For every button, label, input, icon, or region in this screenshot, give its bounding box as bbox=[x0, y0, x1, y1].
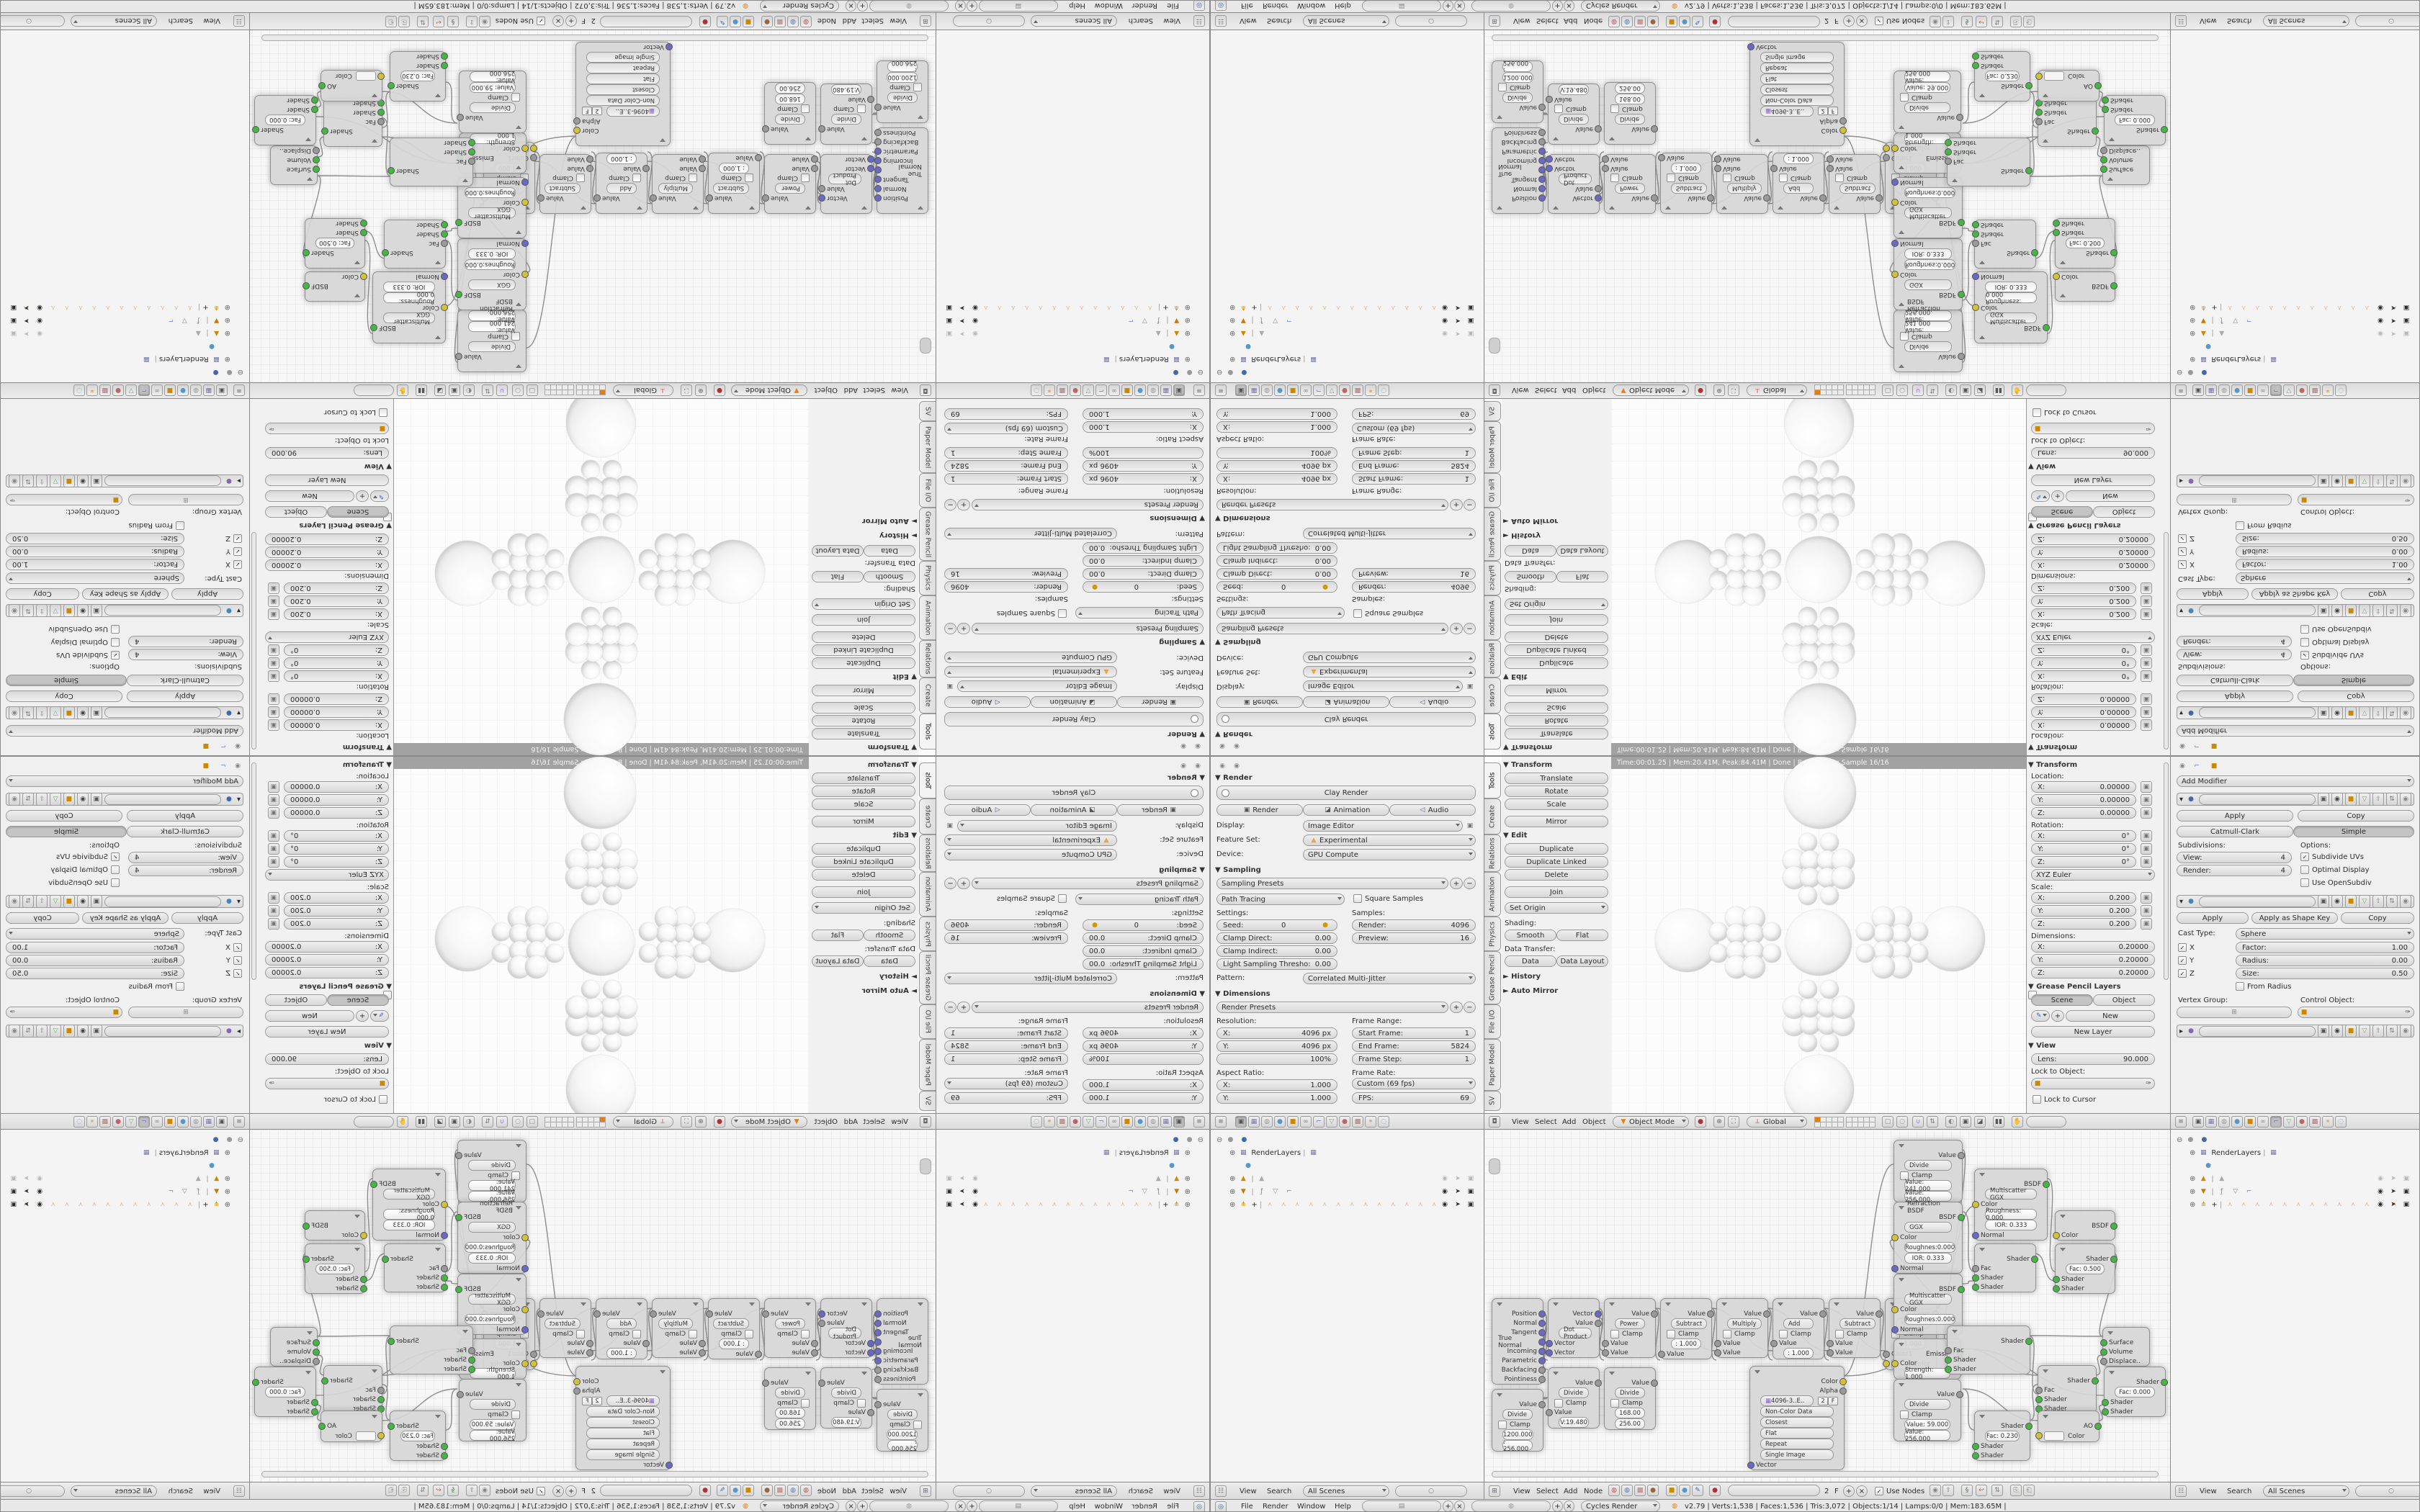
btn-delete[interactable]: Delete bbox=[1505, 869, 1608, 881]
toolshelf-tab-relations[interactable]: Relations bbox=[919, 640, 936, 678]
data-icon[interactable]: ▽ bbox=[50, 1025, 61, 1038]
input-socket[interactable] bbox=[1972, 53, 1979, 60]
matB-icon[interactable]: ◍ bbox=[787, 1485, 799, 1496]
hedc-auto-mirror[interactable]: ► Auto Mirror bbox=[1503, 987, 1558, 995]
node-field[interactable]: Value: 256.000 bbox=[1904, 71, 1950, 82]
sel-render-presets[interactable]: Render Presets bbox=[972, 1002, 1204, 1013]
input-socket[interactable] bbox=[313, 166, 320, 173]
lock-icon[interactable]: ▣ bbox=[2141, 905, 2152, 917]
node-field[interactable]: 256.00 bbox=[775, 1418, 805, 1429]
wrench-icon[interactable]: ⌐ bbox=[1095, 1116, 1107, 1128]
node-11[interactable]: ColorAlpha▦ 4096-3..E..2FNon-Color DataC… bbox=[575, 1366, 671, 1470]
sel-xyz-euler[interactable]: XYZ Euler bbox=[2031, 631, 2155, 643]
btn-item[interactable]: − bbox=[944, 499, 956, 510]
input-socket[interactable] bbox=[313, 1358, 320, 1365]
node-26[interactable]: AOColor bbox=[2038, 1410, 2099, 1442]
node-select-repeat[interactable]: Repeat bbox=[586, 63, 660, 73]
node-select-multiscatter-ggx[interactable]: Multiscatter GGX bbox=[468, 207, 516, 218]
outliner-row-item2[interactable]: ● bbox=[1166, 341, 1178, 352]
eye-icon[interactable]: ◉ bbox=[2331, 474, 2343, 487]
btn-scale[interactable]: Scale bbox=[812, 702, 915, 714]
modifier-header[interactable]: ▾●▣◉■▽⇧⇅◉ bbox=[6, 706, 243, 719]
toolshelf-tab-paper-model[interactable]: Paper Model bbox=[919, 421, 936, 473]
node-6[interactable]: ValueSubtractClamp: 1.000Value bbox=[1660, 1298, 1712, 1359]
btn-join[interactable]: Join bbox=[812, 614, 915, 626]
wrench-icon[interactable]: ⌐ bbox=[1313, 1116, 1325, 1128]
node-field[interactable]: : 256.000 bbox=[887, 61, 918, 72]
btn-smooth[interactable]: Smooth bbox=[864, 930, 915, 941]
output-socket[interactable] bbox=[874, 1310, 882, 1318]
node-8[interactable]: ValueAddClampValue: 1.000 bbox=[596, 1298, 647, 1359]
fld-y[interactable]: Y:0° bbox=[284, 657, 389, 669]
output-socket[interactable] bbox=[302, 1256, 310, 1263]
output-socket[interactable] bbox=[874, 1367, 882, 1374]
layer-grid[interactable] bbox=[1846, 1117, 1875, 1127]
clamp-checkbox[interactable] bbox=[801, 1399, 810, 1408]
toolshelf-tab-tools[interactable]: Tools bbox=[919, 714, 936, 750]
node-select-multiscatter-ggx[interactable]: Multiscatter GGX bbox=[383, 312, 435, 323]
node-select-add[interactable]: Add bbox=[606, 1318, 637, 1329]
btn-simple[interactable]: Simple bbox=[6, 826, 127, 837]
input-socket[interactable] bbox=[1891, 271, 1899, 278]
toolshelf-tab-create[interactable]: Create bbox=[919, 798, 936, 834]
output-socket[interactable] bbox=[1956, 1391, 1963, 1398]
output-socket[interactable] bbox=[1958, 1152, 1965, 1159]
node-1[interactable]: ValueDivideClamp1200.000: 256.000 bbox=[1492, 1389, 1543, 1452]
fld-y[interactable]: Y:4096 px bbox=[1216, 460, 1337, 472]
btn-item[interactable]: − bbox=[944, 623, 956, 634]
node-field[interactable]: IOR: 0.333 bbox=[468, 1253, 516, 1264]
snapn-icon[interactable]: ⇅ bbox=[417, 16, 429, 27]
rendob-icon[interactable]: ◐ bbox=[463, 384, 475, 396]
fld-frame-step[interactable]: Frame Step:1 bbox=[944, 447, 1068, 459]
output-socket[interactable] bbox=[874, 1376, 882, 1383]
fld-x[interactable]: X:0.00000 bbox=[2031, 781, 2136, 793]
pil-x[interactable] bbox=[354, 1116, 394, 1128]
image-name-field[interactable]: ▦ 4096-3..E.. bbox=[1760, 1395, 1814, 1406]
input-socket[interactable] bbox=[468, 148, 475, 156]
output-socket[interactable] bbox=[2110, 282, 2117, 289]
lock-icon[interactable]: ▣ bbox=[268, 856, 279, 868]
output-socket[interactable] bbox=[2161, 126, 2168, 133]
color-swatch[interactable] bbox=[356, 71, 376, 81]
node-select-divide[interactable]: Divide bbox=[1615, 1387, 1645, 1398]
chk-lock-to-cursor[interactable]: Lock to Cursor bbox=[2033, 408, 2096, 417]
sel-sampling-presets[interactable]: Sampling Presets bbox=[1216, 623, 1448, 634]
sel-gpu-compute[interactable]: GPU Compute bbox=[944, 652, 1117, 663]
btn-data-layout[interactable]: Data Layout bbox=[812, 955, 864, 967]
output-socket[interactable] bbox=[1839, 1387, 1847, 1395]
output-socket[interactable] bbox=[762, 125, 769, 132]
chk-use-opensubdiv[interactable]: Use OpenSubdiv bbox=[48, 878, 120, 887]
fld-x[interactable]: X:0.20000 bbox=[265, 559, 389, 571]
snapn-icon[interactable]: ⇅ bbox=[2386, 895, 2398, 908]
node-field[interactable]: : 1.000 bbox=[1783, 1348, 1814, 1359]
node-select-multiply[interactable]: Multiply bbox=[1727, 183, 1762, 194]
fld-lens[interactable]: Lens:90.000 bbox=[265, 447, 389, 459]
fld-y[interactable]: Y:0.20000 bbox=[2031, 546, 2155, 558]
node-17[interactable]: BSDFMultiscatter GGXColorRoughness: 0.00… bbox=[372, 271, 446, 343]
lock-icon[interactable]: ▣ bbox=[268, 807, 279, 819]
chk-use-nodes[interactable]: ✓Use Nodes bbox=[1875, 17, 1924, 25]
node-22[interactable]: SurfaceVolumeDisplace.. bbox=[270, 1327, 318, 1367]
output-socket[interactable] bbox=[874, 129, 882, 136]
data-icon[interactable]: ▽ bbox=[50, 895, 61, 908]
output-socket[interactable] bbox=[2094, 1423, 2102, 1430]
chk-z[interactable]: ✓Z bbox=[225, 969, 242, 978]
fld-y[interactable]: Y:1.000 bbox=[1216, 408, 1337, 420]
input-socket[interactable] bbox=[1972, 62, 1979, 69]
input-socket[interactable] bbox=[755, 1351, 762, 1358]
world-icon[interactable]: ● bbox=[730, 1485, 741, 1496]
tex-icon[interactable]: ▩ bbox=[99, 1116, 111, 1128]
modifier-name-field[interactable] bbox=[104, 476, 221, 487]
input-socket[interactable] bbox=[2102, 106, 2109, 113]
input-socket[interactable] bbox=[1891, 179, 1899, 186]
chain-icon[interactable]: ∞ bbox=[2257, 1116, 2269, 1128]
input-socket[interactable] bbox=[1945, 148, 1952, 156]
node-field[interactable]: Strength: 1.000 bbox=[1904, 133, 1950, 144]
node-16[interactable]: ValueDivideClampValue: 59.000Value: 256.… bbox=[459, 71, 526, 133]
btn-item[interactable]: − bbox=[944, 1002, 956, 1013]
modifier-name-field[interactable] bbox=[104, 1026, 221, 1037]
fld-radius[interactable]: Radius:0.00 bbox=[6, 955, 184, 966]
clamp-checkbox[interactable] bbox=[913, 84, 922, 92]
input-socket[interactable] bbox=[521, 199, 529, 206]
fld-end-frame[interactable]: End Frame:5824 bbox=[1352, 460, 1476, 472]
fld-factor[interactable]: Factor:1.00 bbox=[2236, 559, 2414, 570]
pivot-icon[interactable]: ⊕ bbox=[1713, 1116, 1725, 1128]
node-select-non-color-data[interactable]: Non-Color Data bbox=[1760, 95, 1834, 106]
output-socket[interactable] bbox=[321, 127, 328, 135]
node-field[interactable]: 168.00 bbox=[775, 1408, 805, 1418]
sel-sphere[interactable]: Sphere bbox=[2236, 572, 2414, 584]
node-0[interactable]: PositionNormalTangentTrue NormalIncoming… bbox=[877, 1298, 928, 1385]
fld-y[interactable]: Y:0.00000 bbox=[2031, 706, 2136, 718]
matB-icon[interactable]: ◍ bbox=[787, 16, 799, 27]
sel-sphere[interactable]: Sphere bbox=[2236, 928, 2414, 940]
node-select-ggx[interactable]: GGX bbox=[1904, 279, 1952, 290]
output-socket[interactable] bbox=[1707, 1310, 1714, 1318]
node-field[interactable]: : 1.000 bbox=[719, 1338, 749, 1349]
btn-duplicate[interactable]: Duplicate bbox=[812, 657, 915, 669]
clap-icon[interactable]: ◪ bbox=[434, 1116, 446, 1128]
output-socket[interactable] bbox=[818, 125, 825, 132]
hedc-history[interactable]: ► History bbox=[1503, 531, 1541, 539]
node-select-flat[interactable]: Flat bbox=[1760, 1428, 1834, 1439]
pil-x[interactable] bbox=[1728, 1485, 1820, 1496]
sel-object-mode[interactable]: ▼Object Mode bbox=[731, 384, 807, 396]
chk-x[interactable]: ✓X bbox=[2178, 943, 2195, 952]
input-socket[interactable] bbox=[1945, 1366, 1952, 1373]
pin-icon[interactable]: ◉ bbox=[9, 793, 20, 806]
clamp-checkbox[interactable] bbox=[576, 1330, 585, 1338]
btn-object[interactable]: Object bbox=[2093, 994, 2155, 1006]
node-field[interactable]: Roughness: 0.000 bbox=[383, 1209, 435, 1220]
node-select-single-image[interactable]: Single Image bbox=[586, 1449, 660, 1460]
input-socket[interactable] bbox=[2100, 1339, 2107, 1346]
node-field[interactable]: IOR: 0.333 bbox=[1904, 1253, 1952, 1264]
btn-delete[interactable]: Delete bbox=[812, 869, 915, 881]
arrup-icon[interactable]: ⇧ bbox=[466, 16, 478, 27]
output-socket[interactable] bbox=[1839, 117, 1847, 125]
matA-icon[interactable]: ◍ bbox=[800, 16, 812, 27]
input-socket[interactable] bbox=[311, 1408, 318, 1416]
snapn-icon[interactable]: ⇅ bbox=[22, 1025, 34, 1038]
btn-item[interactable]: + bbox=[1450, 1002, 1463, 1013]
input-socket[interactable] bbox=[2053, 1232, 2060, 1239]
node-field[interactable]: V:19.480 bbox=[1559, 84, 1589, 95]
toolshelf-tab-relations[interactable]: Relations bbox=[1484, 834, 1501, 872]
node-field[interactable]: : 256.000 bbox=[1502, 1440, 1533, 1451]
node-hscrollbar[interactable] bbox=[261, 35, 928, 41]
input-socket[interactable] bbox=[867, 165, 874, 172]
hed-render[interactable]: ▼ Render bbox=[1168, 774, 1205, 782]
clamp-checkbox[interactable] bbox=[745, 1330, 753, 1338]
manip-icon[interactable]: ⛶ bbox=[681, 384, 692, 396]
chk-use-nodes[interactable]: ✓Use Nodes bbox=[1875, 1487, 1924, 1495]
output-socket[interactable] bbox=[874, 185, 882, 192]
modifier-name-field[interactable] bbox=[2199, 606, 2316, 616]
input-socket[interactable] bbox=[2035, 109, 2043, 116]
outliner-row-item0[interactable]: ⊖●● bbox=[210, 1134, 243, 1146]
toolshelf-tab-grease-pencil[interactable]: Grease Pencil bbox=[1484, 951, 1501, 1004]
output-socket[interactable] bbox=[1956, 114, 1963, 121]
input-socket[interactable] bbox=[441, 1201, 448, 1208]
btn-new-layer[interactable]: New Layer bbox=[2031, 1026, 2155, 1038]
modifier-name-field[interactable] bbox=[2199, 1026, 2316, 1037]
cam-icon[interactable]: ▣ bbox=[449, 384, 460, 396]
node-select-non-color-data[interactable]: Non-Color Data bbox=[1760, 1406, 1834, 1417]
sel-sampling-presets[interactable]: Sampling Presets bbox=[972, 623, 1204, 634]
npanel-scrollbar[interactable] bbox=[2164, 762, 2169, 980]
output-socket[interactable] bbox=[2031, 1256, 2038, 1263]
outliner-row-item4[interactable]: ⊕▼|ƒ▽⌐ bbox=[1125, 315, 1191, 326]
btn-simple[interactable]: Simple bbox=[6, 675, 127, 686]
lock-icon[interactable]: ▣ bbox=[268, 794, 279, 806]
output-socket[interactable] bbox=[1538, 1329, 1546, 1336]
input-socket[interactable] bbox=[1891, 1265, 1899, 1272]
input-socket[interactable] bbox=[1658, 154, 1665, 161]
node-9[interactable]: ValueSubtractClampValueValue bbox=[1829, 154, 1881, 214]
node-7[interactable]: ValueMultiplyClampValueValue bbox=[652, 154, 704, 214]
node-18[interactable]: ShaderFacShaderShader bbox=[1974, 220, 2036, 269]
ballr-icon[interactable]: ● bbox=[714, 384, 725, 396]
node-field[interactable]: IOR: 0.333 bbox=[1985, 1220, 2037, 1230]
key1-icon[interactable]: ⎘ bbox=[2010, 1485, 2022, 1496]
toolshelf-tab-file-i-o[interactable]: File I/O bbox=[1484, 1004, 1501, 1039]
input-socket[interactable] bbox=[441, 1265, 448, 1272]
clamp-checkbox[interactable] bbox=[801, 1330, 810, 1338]
btn-item[interactable]: + bbox=[857, 0, 868, 12]
fld-x[interactable]: X:4096 px bbox=[1216, 473, 1337, 485]
fld-x[interactable]: X:0.20000 bbox=[2031, 559, 2155, 571]
cube-icon[interactable]: ■ bbox=[2345, 474, 2357, 487]
outliner-row-item3[interactable]: ⊕▲|▲ bbox=[2190, 328, 2228, 339]
node-13[interactable]: Refraction BSDFBSDFGGXColorRoughnes:0.00… bbox=[457, 238, 526, 310]
node-hscrollbar[interactable] bbox=[261, 1471, 928, 1477]
sel-pencil[interactable]: ✎ bbox=[2031, 490, 2050, 502]
btn-render[interactable]: ▣Render bbox=[1117, 696, 1204, 708]
btn-duplicate-linked[interactable]: Duplicate Linked bbox=[1505, 644, 1608, 656]
clamp-checkbox[interactable] bbox=[689, 174, 697, 183]
data-icon[interactable]: ▽ bbox=[50, 604, 61, 617]
layer-grid[interactable] bbox=[545, 1117, 574, 1127]
node-field[interactable]: Roughnes:0.000 bbox=[465, 259, 516, 270]
btn-duplicate-linked[interactable]: Duplicate Linked bbox=[1505, 856, 1608, 868]
wrench-icon[interactable]: ⌐ bbox=[2270, 1116, 2282, 1128]
node-field[interactable]: Roughness: 0.000 bbox=[1985, 1209, 2037, 1220]
input-socket[interactable] bbox=[2100, 156, 2107, 163]
sel-experimental[interactable]: ▲Experimental bbox=[944, 834, 1117, 846]
node-field[interactable]: Roughness: 0.000 bbox=[383, 292, 435, 303]
btn-scene[interactable]: Scene bbox=[2031, 994, 2093, 1006]
cam-icon[interactable]: ▣ bbox=[1173, 384, 1185, 396]
output-socket[interactable] bbox=[1875, 1310, 1883, 1318]
circ-icon[interactable]: ○ bbox=[1896, 384, 1908, 396]
chk-optimal-display[interactable]: Optimal Display bbox=[50, 638, 120, 647]
input-socket[interactable] bbox=[1602, 1349, 1609, 1356]
node-select-multiscatter-ggx[interactable]: Multiscatter GGX bbox=[468, 1294, 516, 1305]
output-socket[interactable] bbox=[2092, 1377, 2099, 1385]
btn-duplicate[interactable]: Duplicate bbox=[812, 843, 915, 855]
output-socket[interactable] bbox=[650, 1310, 657, 1318]
sel-add-modifier[interactable]: Add Modifier bbox=[2177, 725, 2414, 737]
btn-object[interactable]: Object bbox=[265, 994, 327, 1006]
btn-audio[interactable]: ◁Audio bbox=[1389, 696, 1476, 708]
node-select-divide[interactable]: Divide bbox=[831, 114, 861, 125]
clamp-checkbox[interactable] bbox=[632, 1330, 641, 1338]
image-2[interactable]: 2 bbox=[592, 1397, 602, 1405]
outliner-row-item3[interactable]: ⊕▲|▲ bbox=[2190, 1173, 2228, 1184]
node-26[interactable]: AOColor bbox=[2038, 70, 2099, 102]
chk-from-radius[interactable]: From Radius bbox=[2236, 521, 2291, 530]
sel-set-origin[interactable]: Set Origin bbox=[812, 598, 915, 610]
node-16[interactable]: ValueDivideClampValue: 59.000Value: 256.… bbox=[1894, 1379, 1961, 1441]
cam-icon[interactable]: ▣ bbox=[91, 706, 102, 719]
vport-icon[interactable]: ◘ bbox=[920, 1116, 931, 1128]
input-socket[interactable] bbox=[441, 1452, 448, 1459]
output-socket[interactable] bbox=[874, 176, 882, 183]
outliner-row-item0[interactable]: ⊖●● bbox=[1170, 366, 1204, 378]
node-25[interactable]: ShaderFac: 0.230ShaderShader bbox=[1974, 1410, 2030, 1461]
hed-render[interactable]: ▼ Render bbox=[1215, 730, 1252, 738]
input-socket[interactable] bbox=[867, 1409, 874, 1416]
toolshelf-tab-relations[interactable]: Relations bbox=[1484, 640, 1501, 678]
input-socket[interactable] bbox=[1972, 1201, 1979, 1208]
outliner-row-renderlayers[interactable]: ⊕▦RenderLayers|▦ bbox=[141, 1147, 230, 1158]
scene-icon[interactable]: ◍ bbox=[1147, 384, 1159, 396]
edsel-icon[interactable]: ≡ bbox=[1215, 384, 1227, 396]
lock-icon[interactable]: ▣ bbox=[268, 781, 279, 793]
output-socket[interactable] bbox=[387, 82, 395, 89]
input-socket[interactable] bbox=[2100, 147, 2107, 154]
viewport-canvas[interactable]: Time:00:01.25 | Mem:20.41M, Peak:84.41M … bbox=[394, 757, 809, 1113]
outliner-row-item[interactable]: ⊕⋔+|⋏⋏⋏⋏⋏⋏⋏⋏⋏⋏⋏⋏⋏ bbox=[20, 1199, 230, 1210]
scene-icon[interactable]: ◍ bbox=[1261, 384, 1273, 396]
input-socket[interactable] bbox=[441, 53, 448, 60]
image-name-field[interactable]: ▦ 4096-3..E.. bbox=[606, 106, 660, 117]
input-socket[interactable] bbox=[699, 165, 706, 172]
outliner-row-item0[interactable]: ⊖●● bbox=[2177, 366, 2210, 378]
node-field[interactable]: Fac: 0.500 bbox=[315, 1264, 354, 1274]
pil-mag[interactable]: ○ bbox=[2355, 15, 2420, 27]
btn-new-layer[interactable]: New Layer bbox=[2031, 474, 2155, 486]
chk-use-opensubdiv[interactable]: Use OpenSubdiv bbox=[48, 625, 120, 634]
node-0[interactable]: PositionNormalTangentTrue NormalIncoming… bbox=[1492, 127, 1543, 214]
btn-catmull-clark[interactable]: Catmull-Clark bbox=[127, 675, 243, 686]
toolshelf-tab-animation[interactable]: Animation bbox=[1484, 872, 1501, 917]
node-19[interactable]: BSDFColor bbox=[305, 1210, 365, 1241]
input-socket[interactable] bbox=[1546, 165, 1553, 172]
btn-translate[interactable]: Translate bbox=[812, 773, 915, 784]
output-socket[interactable] bbox=[455, 1286, 462, 1293]
snapel-icon[interactable]: ▢ bbox=[526, 384, 538, 396]
fld-x[interactable]: X:0° bbox=[2031, 670, 2136, 682]
btn-new[interactable]: New bbox=[2066, 1010, 2155, 1022]
fld-radius[interactable]: Radius:0.00 bbox=[2236, 546, 2414, 557]
npanel-scrollbar[interactable] bbox=[2164, 532, 2169, 750]
chk-y[interactable]: ✓Y bbox=[2178, 956, 2194, 965]
image-name-field[interactable]: ▦ 4096-3..E.. bbox=[1760, 106, 1814, 117]
input-socket[interactable] bbox=[313, 1339, 320, 1346]
fld-end-frame[interactable]: End Frame:5824 bbox=[944, 1040, 1068, 1052]
circ-icon[interactable]: ○ bbox=[512, 384, 524, 396]
data-icon[interactable]: ▽ bbox=[1083, 1116, 1094, 1128]
image-2[interactable]: 2 bbox=[592, 107, 602, 116]
output-socket[interactable] bbox=[593, 1310, 601, 1318]
input-socket[interactable] bbox=[1770, 1340, 1778, 1347]
btn-rotate[interactable]: Rotate bbox=[812, 786, 915, 797]
key1-icon[interactable]: ⎘ bbox=[398, 1485, 410, 1496]
fld-x[interactable]: X:0.20000 bbox=[265, 941, 389, 953]
pil-cubeo[interactable]: ■✑ bbox=[2298, 494, 2414, 505]
input-socket[interactable] bbox=[521, 1360, 529, 1367]
pil-scene[interactable]: ◍ bbox=[1471, 0, 1551, 12]
pin-icon[interactable]: ◉ bbox=[479, 16, 490, 27]
output-socket[interactable] bbox=[1651, 1380, 1658, 1387]
input-socket[interactable] bbox=[811, 1340, 818, 1347]
pil-mag[interactable]: ○ bbox=[953, 1485, 1025, 1497]
lock-icon[interactable]: ▣ bbox=[268, 892, 279, 904]
node-22[interactable]: SurfaceVolumeDisplace.. bbox=[2102, 1327, 2150, 1367]
node-1[interactable]: ValueDivideClamp1200.000: 256.000 bbox=[1492, 60, 1543, 123]
circ-icon[interactable]: ○ bbox=[512, 1116, 524, 1128]
snapn-icon[interactable]: ⇅ bbox=[482, 384, 493, 396]
eye-icon[interactable]: ◉ bbox=[2331, 1025, 2343, 1038]
node-field[interactable]: 168.00 bbox=[775, 94, 805, 104]
fld-clamp-indirect[interactable]: Clamp Indirect:0.00 bbox=[1083, 555, 1204, 567]
input-socket[interactable] bbox=[530, 1351, 537, 1358]
snapn-icon[interactable]: ⇅ bbox=[22, 604, 34, 617]
output-socket[interactable] bbox=[318, 1423, 326, 1430]
cube-icon[interactable]: ■ bbox=[2345, 706, 2357, 719]
cube-icon[interactable]: ■ bbox=[63, 706, 75, 719]
mat-icon[interactable]: ● bbox=[2296, 1116, 2308, 1128]
cube-icon[interactable]: ■ bbox=[2244, 1116, 2256, 1128]
data-icon[interactable]: ▽ bbox=[1326, 384, 1337, 396]
output-socket[interactable] bbox=[818, 1310, 825, 1318]
fld-clamp-direct[interactable]: Clamp Direct:0.00 bbox=[1216, 932, 1337, 944]
ballr-icon[interactable]: ● bbox=[1695, 384, 1706, 396]
sel-object-mode[interactable]: ▼Object Mode bbox=[1613, 1116, 1689, 1128]
node-select-divide[interactable]: Divide bbox=[470, 102, 516, 113]
chk-subdivide-uvs[interactable]: ✓Subdivide UVs bbox=[2300, 651, 2364, 660]
output-socket[interactable] bbox=[1595, 194, 1602, 202]
hed-transform[interactable]: ▼ Transform bbox=[1503, 761, 1552, 769]
node-select-power[interactable]: Power bbox=[775, 1318, 805, 1329]
sel-render-presets[interactable]: Render Presets bbox=[1216, 1002, 1448, 1013]
